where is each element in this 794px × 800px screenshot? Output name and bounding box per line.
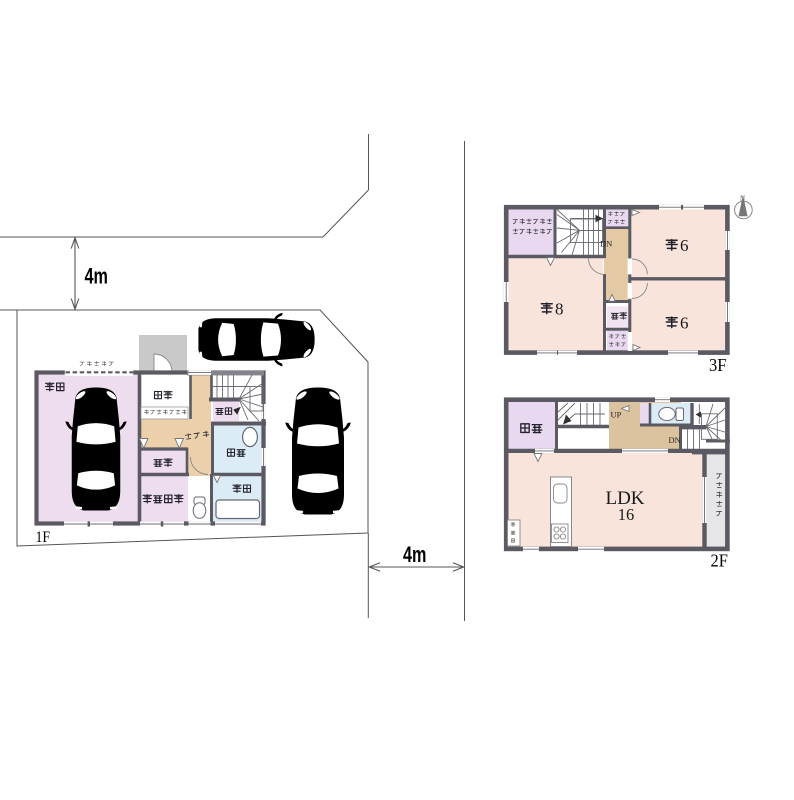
svg-text:3F: 3F [709, 355, 726, 375]
svg-text:16: 16 [618, 505, 635, 524]
svg-text:4m: 4m [403, 542, 426, 567]
svg-text:1F: 1F [36, 529, 51, 546]
svg-text:4m: 4m [85, 264, 108, 289]
svg-text:DN: DN [669, 435, 681, 445]
svg-text:8: 8 [555, 300, 564, 319]
svg-text:DN: DN [600, 239, 612, 249]
svg-text:6: 6 [680, 314, 689, 333]
svg-text:6: 6 [680, 236, 689, 255]
svg-text:2F: 2F [711, 551, 728, 571]
svg-text:UP: UP [611, 410, 622, 420]
